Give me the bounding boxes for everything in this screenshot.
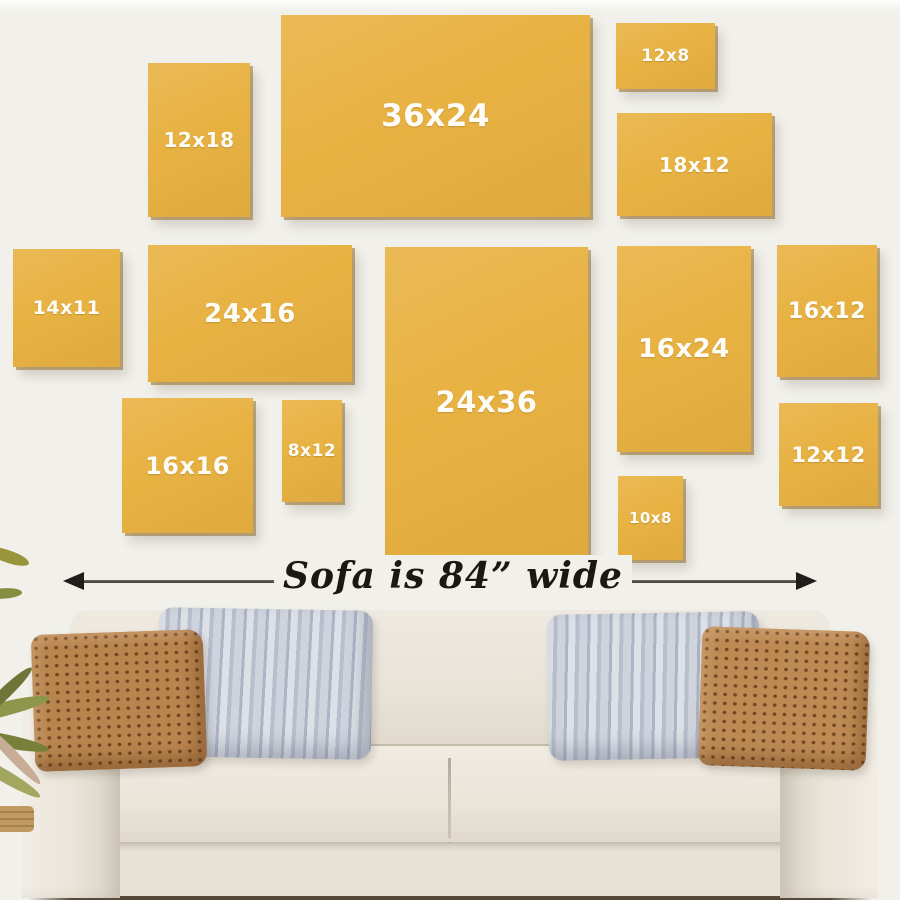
width-arrow-head-right <box>796 572 817 590</box>
plant-pot <box>0 806 34 832</box>
canvas-size-16x12: 16x12 <box>777 245 877 377</box>
canvas-size-12x12: 12x12 <box>779 403 878 506</box>
canvas-size-18x12: 18x12 <box>617 113 772 216</box>
canvas-size-16x24: 16x24 <box>617 246 751 452</box>
plant-leaf <box>0 545 31 568</box>
pillow-patterned-right <box>698 626 871 771</box>
canvas-size-36x24: 36x24 <box>281 15 590 217</box>
canvas-size-14x11: 14x11 <box>13 249 120 367</box>
plant-leaf <box>0 585 23 601</box>
size-guide-scene: 12x1836x2412x818x1214x1124x1624x3616x241… <box>0 0 900 900</box>
canvas-size-24x16: 24x16 <box>148 245 352 382</box>
seat-cushion-seam <box>448 758 451 838</box>
width-arrow-head-left <box>63 572 84 590</box>
canvas-size-16x16: 16x16 <box>122 398 253 533</box>
canvas-size-12x8: 12x8 <box>616 23 715 89</box>
canvas-size-12x18: 12x18 <box>148 63 250 217</box>
canvas-size-10x8: 10x8 <box>618 476 683 560</box>
canvas-size-8x12: 8x12 <box>282 400 342 502</box>
canvas-size-24x36: 24x36 <box>385 247 588 556</box>
pillow-patterned-left <box>31 629 208 772</box>
sofa-width-label: Sofa is 84” wide <box>274 555 632 597</box>
